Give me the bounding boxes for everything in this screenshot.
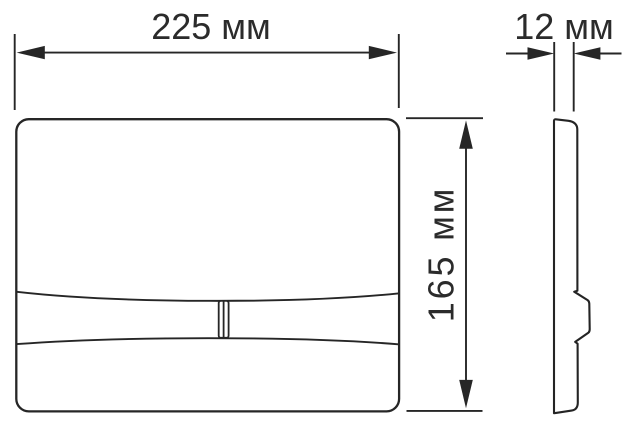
svg-text:165 мм: 165 мм — [421, 186, 462, 322]
svg-text:12 мм: 12 мм — [514, 6, 614, 47]
svg-text:225 мм: 225 мм — [151, 6, 271, 47]
